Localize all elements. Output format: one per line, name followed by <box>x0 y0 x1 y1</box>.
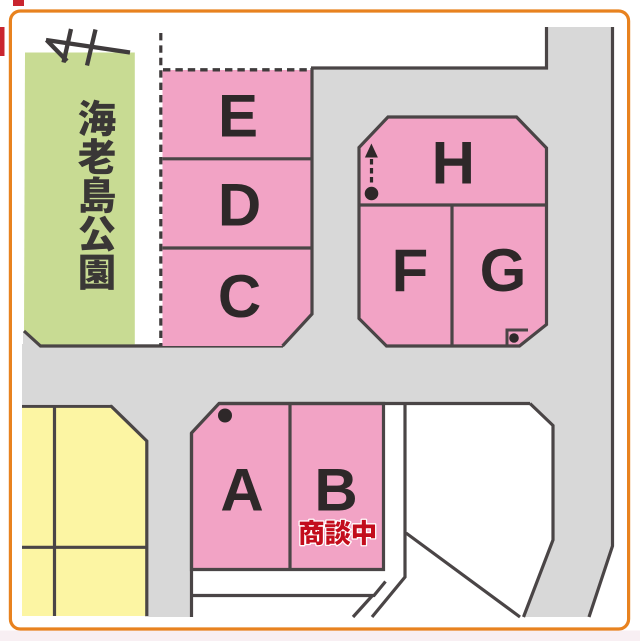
svg-text:D: D <box>218 171 261 238</box>
svg-text:G: G <box>480 237 527 304</box>
svg-text:H: H <box>432 130 475 197</box>
svg-text:C: C <box>218 263 261 330</box>
svg-text:F: F <box>392 237 429 304</box>
svg-text:A: A <box>220 457 263 524</box>
svg-text:B: B <box>314 457 357 524</box>
svg-text:E: E <box>218 82 258 149</box>
